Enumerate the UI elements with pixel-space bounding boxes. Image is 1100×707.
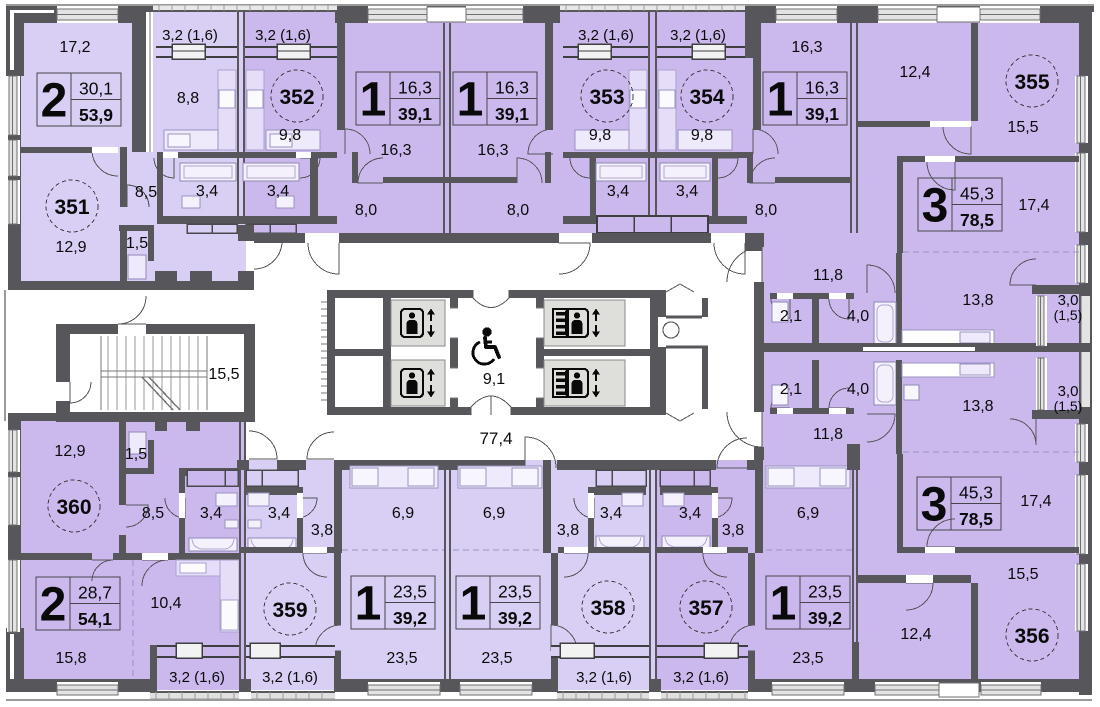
- svg-text:6,9: 6,9: [483, 505, 505, 522]
- svg-text:3,2 (1,6): 3,2 (1,6): [673, 669, 729, 686]
- svg-text:9,1: 9,1: [483, 371, 505, 388]
- svg-text:3,8: 3,8: [311, 522, 333, 539]
- svg-text:3,4: 3,4: [607, 183, 629, 200]
- svg-text:358: 358: [590, 597, 625, 620]
- svg-text:1: 1: [457, 74, 484, 127]
- svg-text:360: 360: [56, 496, 91, 519]
- svg-text:2: 2: [41, 75, 68, 128]
- svg-text:39,1: 39,1: [495, 104, 529, 124]
- svg-text:23,5: 23,5: [808, 582, 842, 602]
- svg-text:30,1: 30,1: [79, 79, 113, 99]
- svg-text:3,2 (1,6): 3,2 (1,6): [578, 27, 634, 44]
- svg-text:53,9: 53,9: [79, 105, 113, 125]
- svg-text:3: 3: [921, 479, 948, 532]
- svg-text:78,5: 78,5: [959, 509, 993, 529]
- svg-text:15,5: 15,5: [1007, 119, 1038, 136]
- svg-text:11,8: 11,8: [813, 267, 843, 284]
- svg-text:354: 354: [689, 86, 724, 109]
- svg-text:3,4: 3,4: [200, 505, 222, 522]
- svg-text:1: 1: [767, 74, 794, 127]
- svg-text:8,8: 8,8: [177, 90, 199, 107]
- svg-text:3: 3: [922, 180, 949, 233]
- svg-text:3,2 (1,6): 3,2 (1,6): [255, 27, 311, 44]
- svg-text:39,1: 39,1: [398, 104, 432, 124]
- svg-text:9,8: 9,8: [691, 127, 713, 144]
- svg-text:15,5: 15,5: [1007, 566, 1038, 583]
- svg-text:9,8: 9,8: [589, 127, 611, 144]
- svg-text:353: 353: [589, 86, 624, 109]
- svg-text:1,5: 1,5: [125, 446, 147, 463]
- svg-text:16,3: 16,3: [380, 142, 411, 159]
- svg-text:3,2 (1,6): 3,2 (1,6): [162, 27, 218, 44]
- svg-text:17,4: 17,4: [1020, 493, 1051, 510]
- svg-text:352: 352: [279, 86, 314, 109]
- svg-text:12,9: 12,9: [55, 239, 86, 256]
- svg-text:15,8: 15,8: [55, 650, 86, 667]
- svg-text:3,2 (1,6): 3,2 (1,6): [169, 669, 225, 686]
- svg-text:8,0: 8,0: [507, 202, 529, 219]
- svg-text:23,5: 23,5: [386, 650, 417, 667]
- svg-text:2: 2: [40, 579, 67, 632]
- svg-text:2,1: 2,1: [780, 381, 802, 398]
- svg-text:1: 1: [770, 578, 797, 631]
- svg-text:351: 351: [54, 196, 89, 219]
- svg-text:4,0: 4,0: [847, 381, 869, 398]
- svg-text:39,2: 39,2: [393, 608, 427, 628]
- svg-text:39,1: 39,1: [805, 104, 839, 124]
- svg-text:8,0: 8,0: [755, 202, 777, 219]
- svg-text:(1,5): (1,5): [1054, 398, 1083, 414]
- svg-text:77,4: 77,4: [479, 429, 512, 448]
- svg-text:3,2 (1,6): 3,2 (1,6): [670, 27, 726, 44]
- svg-text:3,8: 3,8: [722, 522, 744, 539]
- svg-text:356: 356: [1014, 625, 1049, 648]
- svg-text:3,4: 3,4: [679, 505, 701, 522]
- svg-text:13,8: 13,8: [962, 292, 993, 309]
- svg-text:45,3: 45,3: [959, 483, 993, 503]
- svg-text:359: 359: [272, 599, 307, 622]
- svg-text:12,4: 12,4: [900, 626, 931, 643]
- svg-text:3,2 (1,6): 3,2 (1,6): [576, 669, 632, 686]
- svg-text:13,8: 13,8: [962, 398, 993, 415]
- svg-text:11,8: 11,8: [813, 426, 843, 443]
- svg-text:1: 1: [360, 74, 387, 127]
- svg-text:54,1: 54,1: [78, 609, 112, 629]
- svg-text:3,4: 3,4: [267, 183, 289, 200]
- svg-text:2,1: 2,1: [780, 308, 802, 325]
- svg-text:6,9: 6,9: [392, 505, 414, 522]
- svg-text:6,9: 6,9: [797, 505, 819, 522]
- svg-text:78,5: 78,5: [960, 210, 994, 230]
- svg-text:23,5: 23,5: [792, 650, 823, 667]
- svg-text:16,3: 16,3: [791, 39, 822, 56]
- svg-text:1: 1: [355, 578, 382, 631]
- svg-text:4,0: 4,0: [847, 308, 869, 325]
- svg-text:3,4: 3,4: [268, 505, 290, 522]
- svg-text:23,5: 23,5: [393, 582, 427, 602]
- svg-text:8,5: 8,5: [142, 505, 164, 522]
- svg-text:28,7: 28,7: [78, 583, 112, 603]
- svg-text:10,4: 10,4: [150, 595, 181, 612]
- svg-text:39,2: 39,2: [808, 608, 842, 628]
- svg-text:23,5: 23,5: [498, 582, 532, 602]
- svg-text:3,8: 3,8: [557, 522, 579, 539]
- svg-text:45,3: 45,3: [960, 184, 994, 204]
- svg-text:16,3: 16,3: [398, 78, 432, 98]
- svg-text:357: 357: [688, 597, 723, 620]
- svg-text:3,4: 3,4: [676, 183, 698, 200]
- svg-text:17,4: 17,4: [1018, 197, 1049, 214]
- svg-text:3,2 (1,6): 3,2 (1,6): [262, 669, 318, 686]
- svg-text:16,3: 16,3: [805, 78, 839, 98]
- svg-text:12,9: 12,9: [54, 443, 85, 460]
- svg-text:1: 1: [460, 578, 487, 631]
- svg-text:355: 355: [1014, 71, 1049, 94]
- svg-text:17,2: 17,2: [59, 39, 90, 56]
- svg-text:(1,5): (1,5): [1054, 307, 1083, 323]
- svg-text:8,5: 8,5: [135, 184, 157, 201]
- svg-text:3,4: 3,4: [600, 505, 622, 522]
- svg-text:16,3: 16,3: [495, 78, 529, 98]
- svg-text:12,4: 12,4: [899, 64, 930, 81]
- svg-text:8,0: 8,0: [355, 202, 377, 219]
- svg-text:16,3: 16,3: [477, 142, 508, 159]
- svg-text:15,5: 15,5: [208, 366, 239, 383]
- svg-text:1,5: 1,5: [126, 235, 148, 252]
- svg-text:23,5: 23,5: [481, 650, 512, 667]
- svg-text:3,4: 3,4: [196, 183, 218, 200]
- svg-text:39,2: 39,2: [498, 608, 532, 628]
- svg-text:9,8: 9,8: [279, 127, 301, 144]
